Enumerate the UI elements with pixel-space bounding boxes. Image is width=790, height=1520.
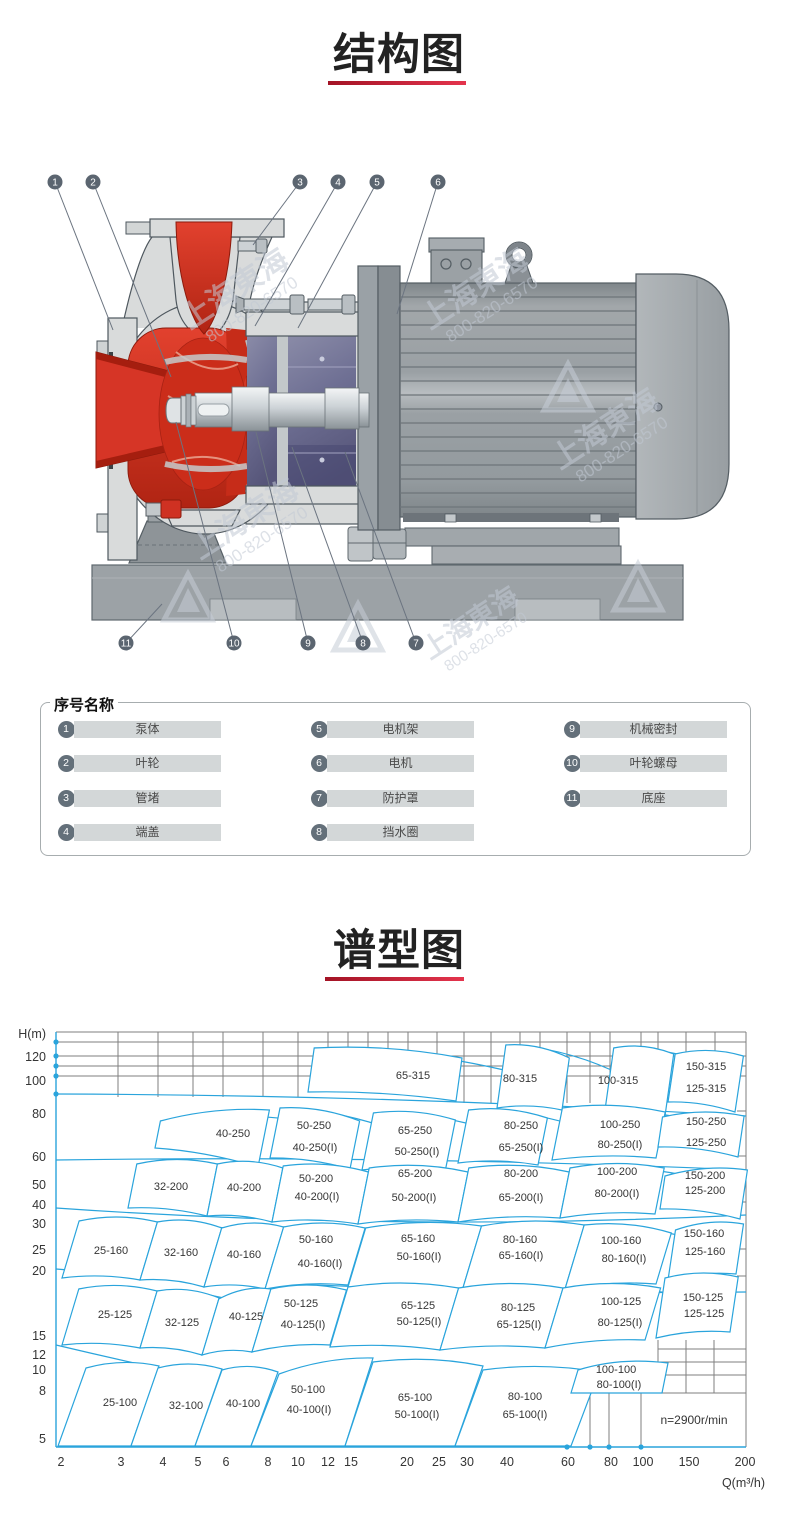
svg-text:150-200: 150-200 [685, 1170, 725, 1182]
svg-text:65-200: 65-200 [398, 1168, 432, 1180]
svg-text:25-100: 25-100 [103, 1397, 137, 1409]
svg-text:50-200(I): 50-200(I) [392, 1192, 437, 1204]
svg-text:50-100: 50-100 [291, 1384, 325, 1396]
svg-text:15: 15 [32, 1329, 46, 1343]
svg-text:40-100: 40-100 [226, 1398, 260, 1410]
svg-text:80-250(I): 80-250(I) [598, 1139, 643, 1151]
svg-text:1: 1 [52, 178, 58, 189]
svg-text:11: 11 [121, 639, 132, 650]
svg-text:65-250: 65-250 [398, 1125, 432, 1137]
svg-text:7: 7 [413, 639, 419, 650]
svg-text:150-160: 150-160 [684, 1228, 724, 1240]
svg-text:9: 9 [305, 639, 311, 650]
svg-text:100: 100 [25, 1074, 46, 1088]
svg-text:10: 10 [228, 639, 240, 650]
svg-text:25: 25 [432, 1455, 446, 1469]
svg-text:80-200(I): 80-200(I) [595, 1188, 640, 1200]
svg-text:80-125: 80-125 [501, 1302, 535, 1314]
svg-text:65-250(I): 65-250(I) [499, 1142, 544, 1154]
svg-text:100-160: 100-160 [601, 1235, 641, 1247]
svg-text:15: 15 [344, 1455, 358, 1469]
svg-text:40-160(I): 40-160(I) [298, 1258, 343, 1270]
svg-text:40: 40 [500, 1455, 514, 1469]
svg-text:3: 3 [297, 178, 303, 189]
svg-text:6: 6 [435, 178, 441, 189]
svg-text:8: 8 [265, 1455, 272, 1469]
svg-text:50-200: 50-200 [299, 1173, 333, 1185]
svg-text:6: 6 [223, 1455, 230, 1469]
svg-text:65-125(I): 65-125(I) [497, 1319, 542, 1331]
svg-text:65-160: 65-160 [401, 1233, 435, 1245]
svg-text:40-100(I): 40-100(I) [287, 1404, 332, 1416]
svg-text:25-160: 25-160 [94, 1245, 128, 1257]
svg-text:80-100: 80-100 [508, 1391, 542, 1403]
svg-text:50: 50 [32, 1178, 46, 1192]
svg-text:8: 8 [360, 639, 366, 650]
svg-text:60: 60 [32, 1150, 46, 1164]
svg-text:80-100(I): 80-100(I) [597, 1379, 642, 1391]
svg-text:125-315: 125-315 [686, 1083, 726, 1095]
svg-text:4: 4 [335, 178, 341, 189]
svg-text:10: 10 [291, 1455, 305, 1469]
svg-text:32-160: 32-160 [164, 1247, 198, 1259]
svg-text:80-160(I): 80-160(I) [602, 1253, 647, 1265]
svg-text:32-200: 32-200 [154, 1181, 188, 1193]
svg-text:100-200: 100-200 [597, 1166, 637, 1178]
svg-text:50-100(I): 50-100(I) [395, 1409, 440, 1421]
svg-text:80-160: 80-160 [503, 1234, 537, 1246]
svg-text:2: 2 [90, 178, 96, 189]
svg-text:30: 30 [32, 1217, 46, 1231]
svg-text:20: 20 [400, 1455, 414, 1469]
svg-text:65-160(I): 65-160(I) [499, 1250, 544, 1262]
svg-text:50-160(I): 50-160(I) [397, 1251, 442, 1263]
svg-text:125-125: 125-125 [684, 1308, 724, 1320]
svg-text:100-250: 100-250 [600, 1119, 640, 1131]
svg-text:60: 60 [561, 1455, 575, 1469]
svg-text:80-315: 80-315 [503, 1073, 537, 1085]
svg-text:80: 80 [32, 1107, 46, 1121]
svg-text:n=2900r/min: n=2900r/min [660, 1413, 727, 1427]
svg-text:40-250: 40-250 [216, 1128, 250, 1140]
svg-text:40: 40 [32, 1198, 46, 1212]
svg-text:20: 20 [32, 1264, 46, 1278]
svg-text:25: 25 [32, 1243, 46, 1257]
svg-text:80: 80 [604, 1455, 618, 1469]
svg-text:150-315: 150-315 [686, 1061, 726, 1073]
svg-text:50-125: 50-125 [284, 1298, 318, 1310]
svg-text:5: 5 [39, 1432, 46, 1446]
svg-text:125-160: 125-160 [685, 1246, 725, 1258]
svg-text:65-200(I): 65-200(I) [499, 1192, 544, 1204]
svg-text:12: 12 [321, 1455, 335, 1469]
svg-text:100: 100 [633, 1455, 654, 1469]
svg-text:40-125(I): 40-125(I) [281, 1319, 326, 1331]
svg-text:8: 8 [39, 1384, 46, 1398]
svg-text:50-160: 50-160 [299, 1234, 333, 1246]
svg-text:50-250: 50-250 [297, 1120, 331, 1132]
svg-text:100-125: 100-125 [601, 1296, 641, 1308]
svg-text:80-200: 80-200 [504, 1168, 538, 1180]
svg-text:5: 5 [374, 178, 380, 189]
svg-text:80-125(I): 80-125(I) [598, 1317, 643, 1329]
svg-text:40-160: 40-160 [227, 1249, 261, 1261]
svg-text:65-125: 65-125 [401, 1300, 435, 1312]
svg-text:65-100(I): 65-100(I) [503, 1409, 548, 1421]
svg-text:2: 2 [58, 1455, 65, 1469]
svg-text:100-100: 100-100 [596, 1364, 636, 1376]
svg-text:150-250: 150-250 [686, 1116, 726, 1128]
svg-text:40-250(I): 40-250(I) [293, 1142, 338, 1154]
svg-text:50-125(I): 50-125(I) [397, 1316, 442, 1328]
svg-text:32-125: 32-125 [165, 1317, 199, 1329]
svg-text:5: 5 [195, 1455, 202, 1469]
svg-text:200: 200 [735, 1455, 756, 1469]
svg-text:125-250: 125-250 [686, 1137, 726, 1149]
svg-text:25-125: 25-125 [98, 1309, 132, 1321]
svg-text:30: 30 [460, 1455, 474, 1469]
svg-text:100-315: 100-315 [598, 1075, 638, 1087]
svg-text:40-125: 40-125 [229, 1311, 263, 1323]
svg-text:50-250(I): 50-250(I) [395, 1146, 440, 1158]
svg-text:32-100: 32-100 [169, 1400, 203, 1412]
svg-text:H(m): H(m) [18, 1027, 46, 1041]
svg-text:125-200: 125-200 [685, 1185, 725, 1197]
svg-text:10: 10 [32, 1363, 46, 1377]
svg-text:Q(m³/h): Q(m³/h) [722, 1476, 765, 1490]
svg-text:65-100: 65-100 [398, 1392, 432, 1404]
svg-text:40-200(I): 40-200(I) [295, 1191, 340, 1203]
svg-text:120: 120 [25, 1050, 46, 1064]
svg-text:80-250: 80-250 [504, 1120, 538, 1132]
svg-text:4: 4 [160, 1455, 167, 1469]
svg-text:12: 12 [32, 1348, 46, 1362]
svg-text:65-315: 65-315 [396, 1070, 430, 1082]
svg-text:150-125: 150-125 [683, 1292, 723, 1304]
svg-text:3: 3 [118, 1455, 125, 1469]
svg-text:40-200: 40-200 [227, 1182, 261, 1194]
svg-text:150: 150 [679, 1455, 700, 1469]
